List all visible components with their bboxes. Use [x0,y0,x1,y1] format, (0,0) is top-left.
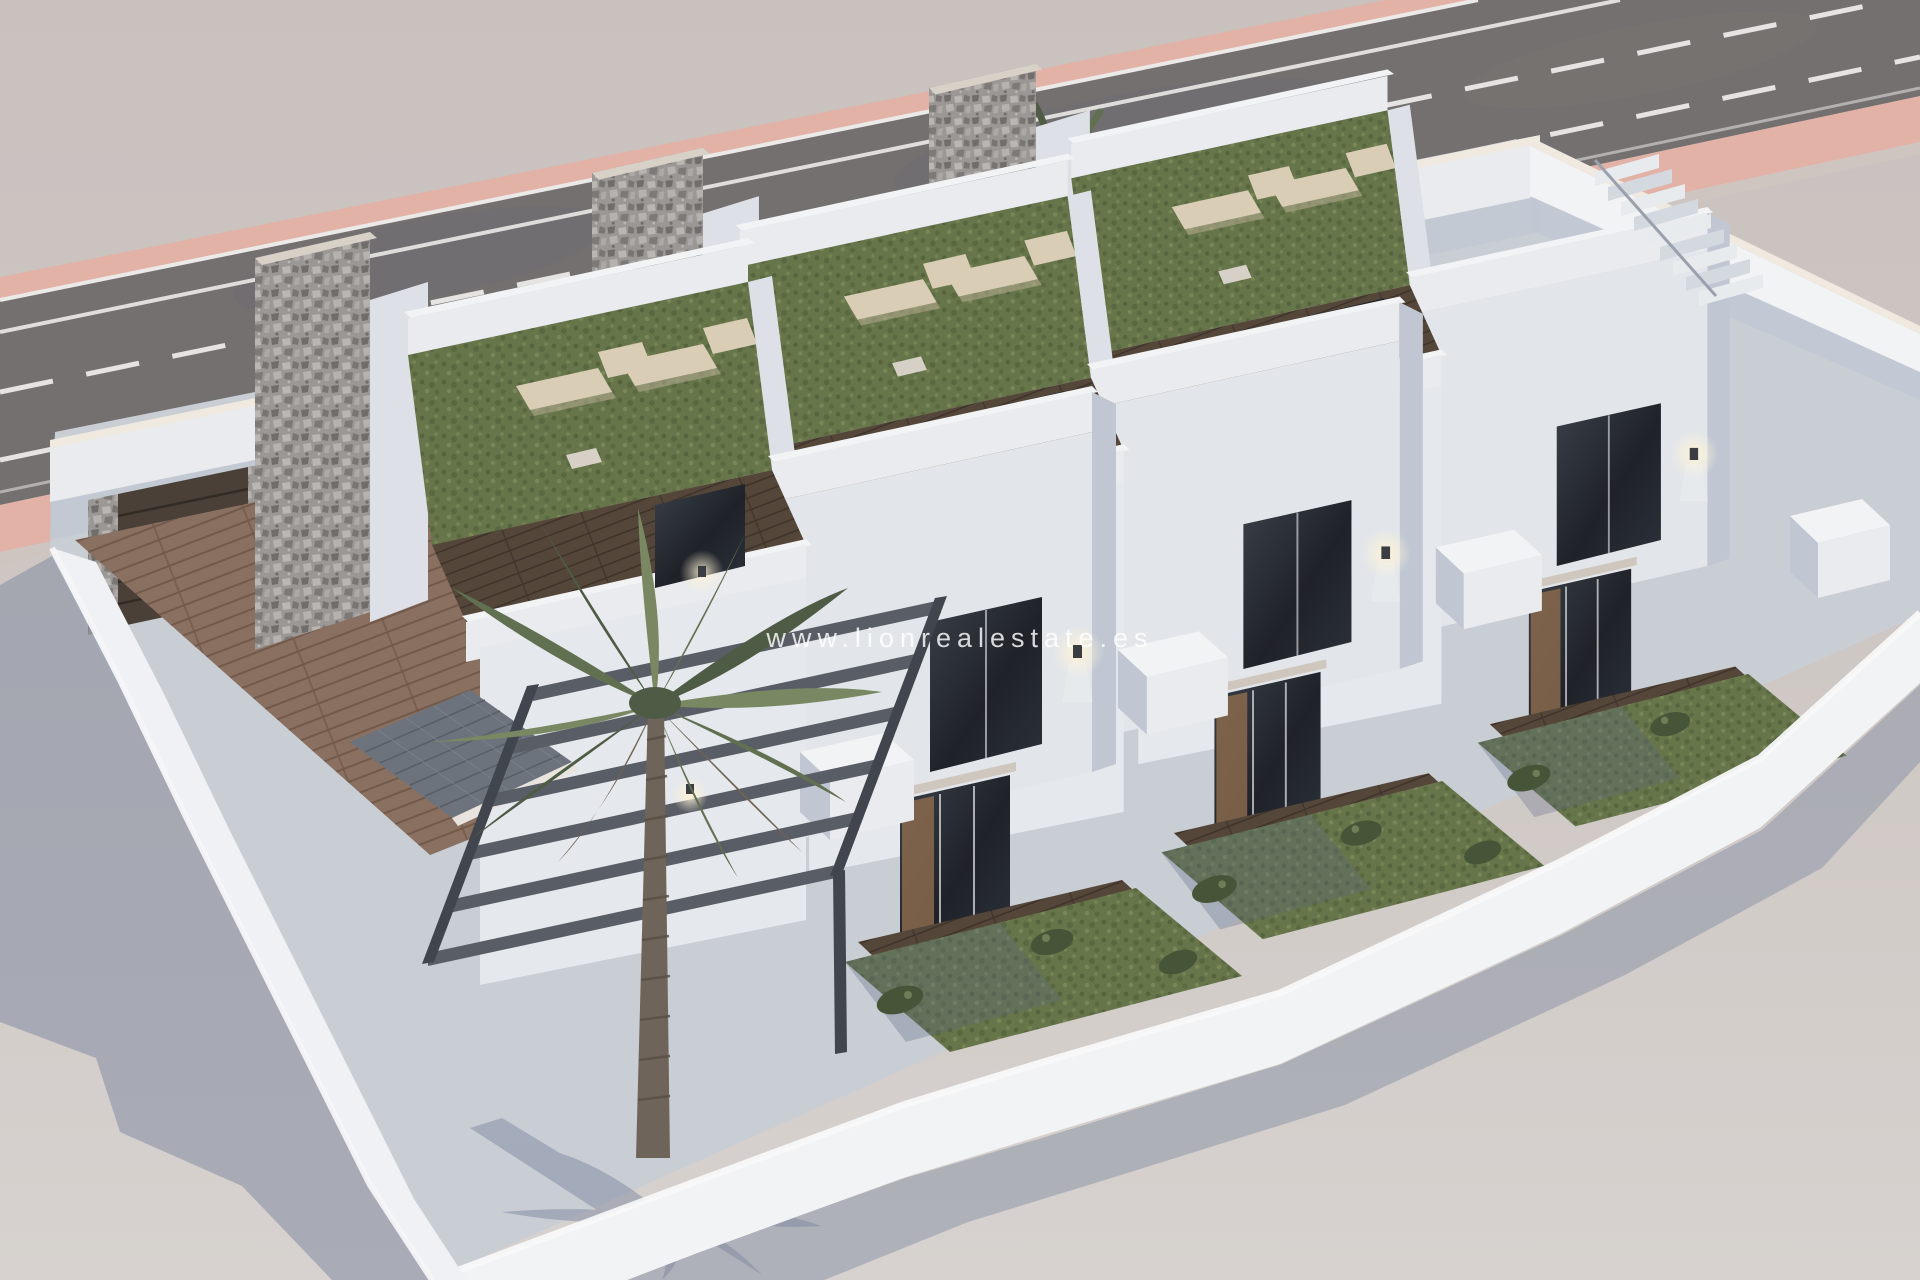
watermark: www.lionrealestate.es [765,623,1153,653]
pergola-post [833,870,847,1054]
render-canvas: www.lionrealestate.es [0,0,1920,1280]
house-3-balcony-planter [1790,499,1890,598]
pergola-lamp [672,777,708,813]
